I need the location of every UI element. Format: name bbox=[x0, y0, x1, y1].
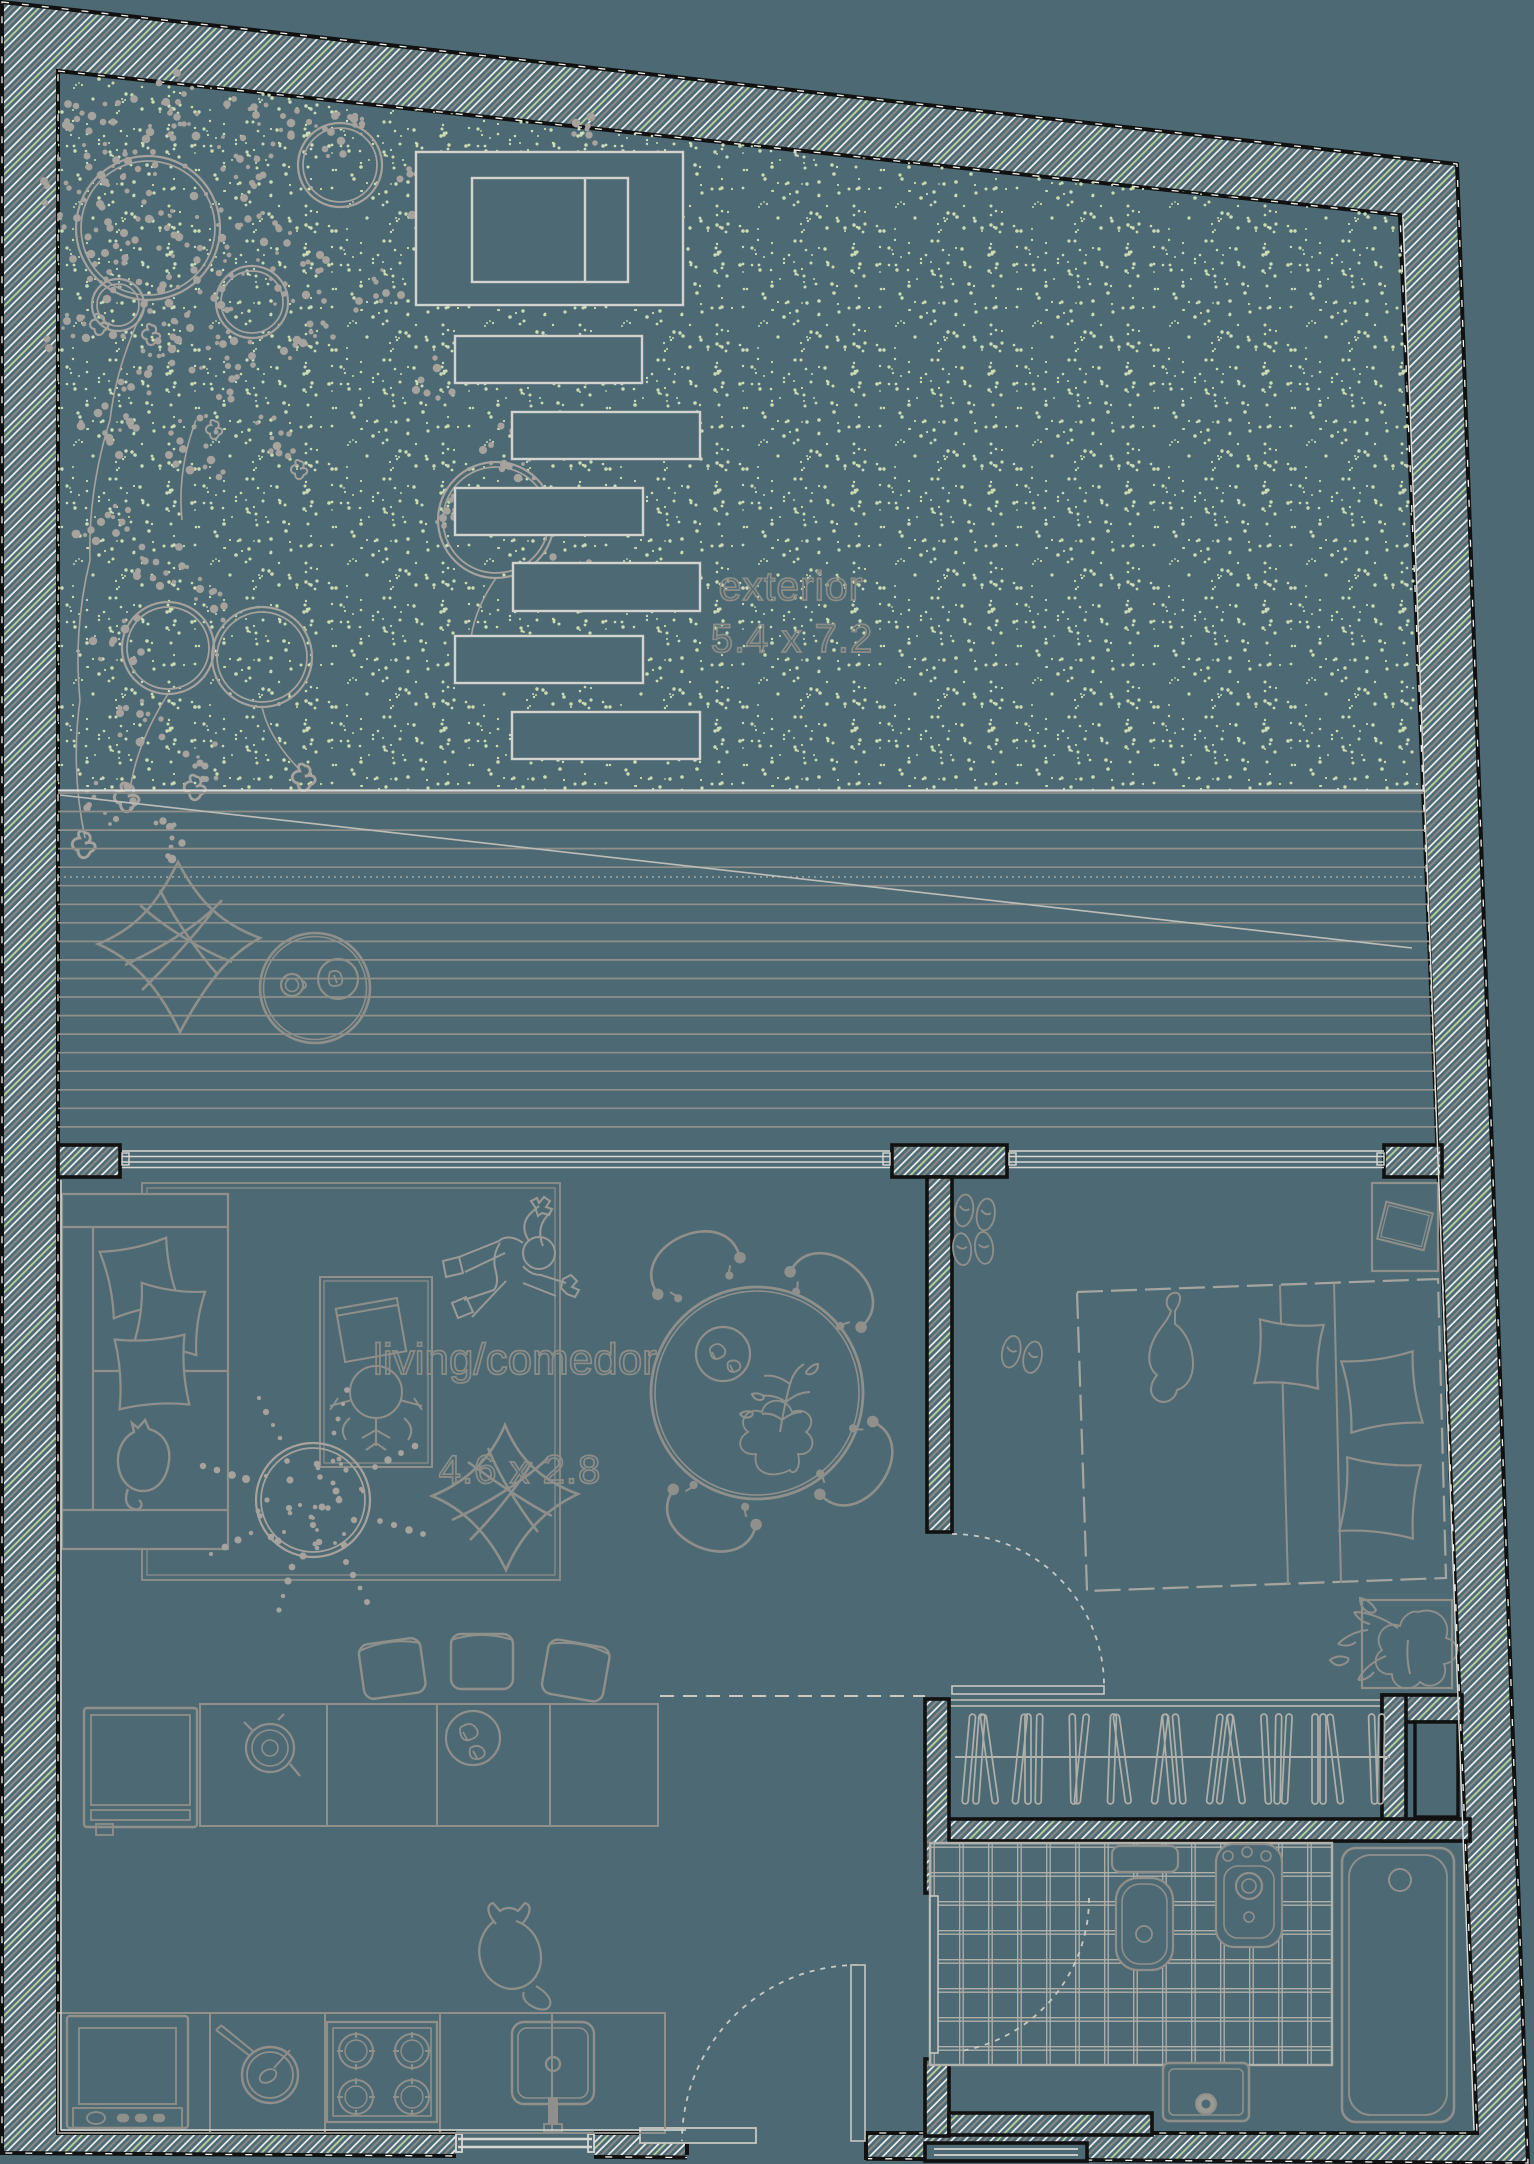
svg-text:4.6 x 2.8: 4.6 x 2.8 bbox=[439, 1448, 601, 1492]
svg-text:exterior: exterior bbox=[719, 563, 864, 609]
svg-text:living/comedor: living/comedor bbox=[373, 1335, 657, 1384]
svg-text:5.4 x 7.2: 5.4 x 7.2 bbox=[711, 617, 873, 661]
